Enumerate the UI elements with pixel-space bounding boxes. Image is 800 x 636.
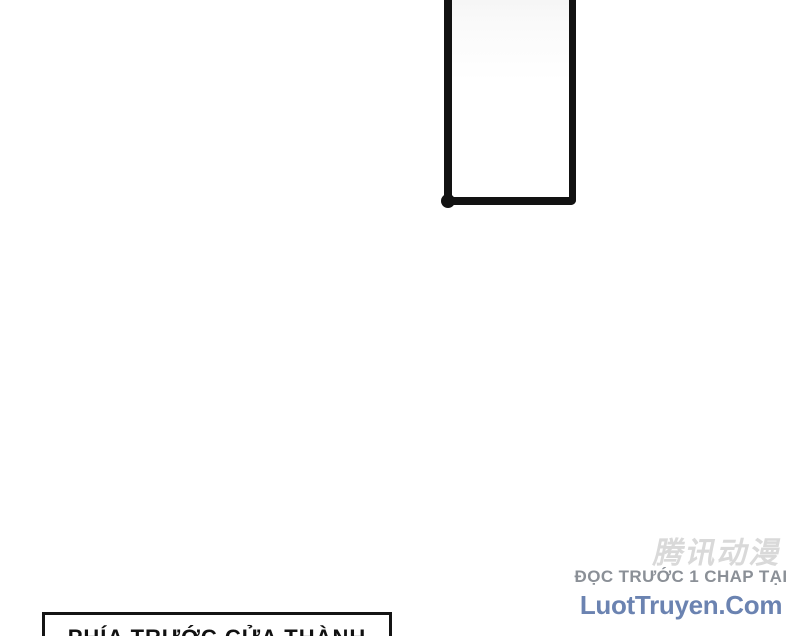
promo-text: ĐỌC TRƯỚC 1 CHAP TẠI xyxy=(570,567,792,587)
comic-page: 腾讯动漫 ĐỌC TRƯỚC 1 CHAP TẠI LuotTruyen.Com… xyxy=(0,0,800,636)
caption-box: PHÍA TRƯỚC CỬA THÀNH xyxy=(42,612,392,636)
caption-text: PHÍA TRƯỚC CỬA THÀNH xyxy=(45,625,389,636)
site-name-text: LuotTruyen.Com xyxy=(570,590,792,621)
panel-corner-ink-dot xyxy=(441,194,455,208)
comic-panel xyxy=(444,0,576,205)
promo-block: ĐỌC TRƯỚC 1 CHAP TẠI LuotTruyen.Com xyxy=(570,567,792,621)
tencent-comics-watermark: 腾讯动漫 xyxy=(650,528,787,572)
